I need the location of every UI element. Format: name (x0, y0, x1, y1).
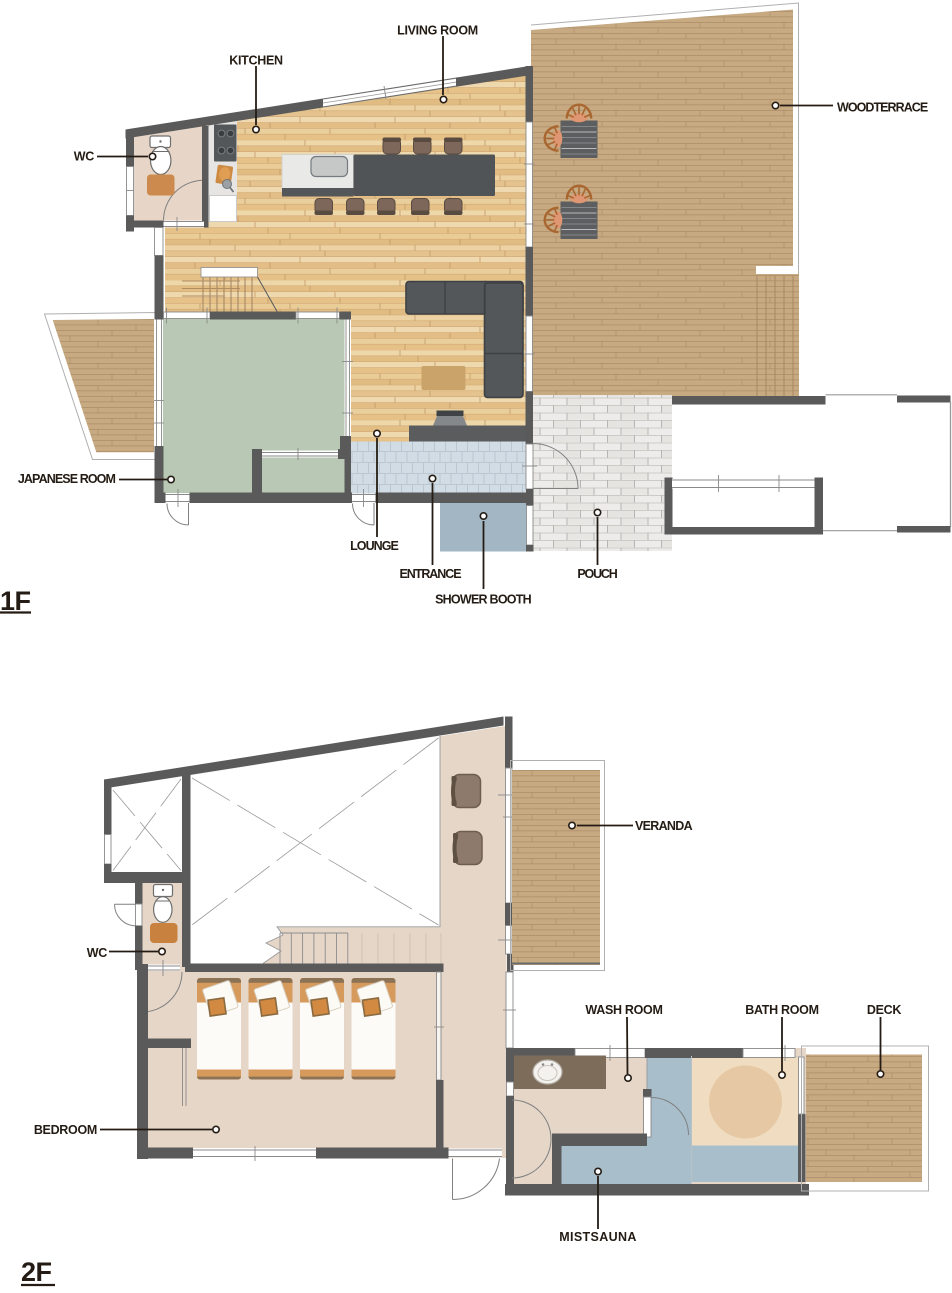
svg-text:LOUNGE: LOUNGE (350, 539, 398, 553)
svg-text:BATH ROOM: BATH ROOM (745, 1003, 818, 1017)
svg-text:2F: 2F (21, 1257, 52, 1287)
svg-text:WOODTERRACE: WOODTERRACE (837, 101, 928, 115)
svg-text:WC: WC (87, 946, 107, 960)
svg-text:DECK: DECK (867, 1003, 901, 1017)
svg-text:MISTSAUNA: MISTSAUNA (559, 1230, 636, 1244)
svg-text:LIVING ROOM: LIVING ROOM (397, 24, 478, 38)
svg-text:WC: WC (74, 150, 94, 164)
svg-text:WASH ROOM: WASH ROOM (585, 1003, 662, 1017)
svg-text:POUCH: POUCH (577, 567, 617, 581)
svg-text:SHOWER BOOTH: SHOWER BOOTH (435, 593, 532, 607)
svg-text:KITCHEN: KITCHEN (229, 54, 283, 68)
svg-text:ENTRANCE: ENTRANCE (399, 567, 461, 581)
svg-text:BEDROOM: BEDROOM (34, 1123, 97, 1137)
svg-text:JAPANESE ROOM: JAPANESE ROOM (18, 472, 116, 486)
svg-text:VERANDA: VERANDA (635, 819, 693, 833)
